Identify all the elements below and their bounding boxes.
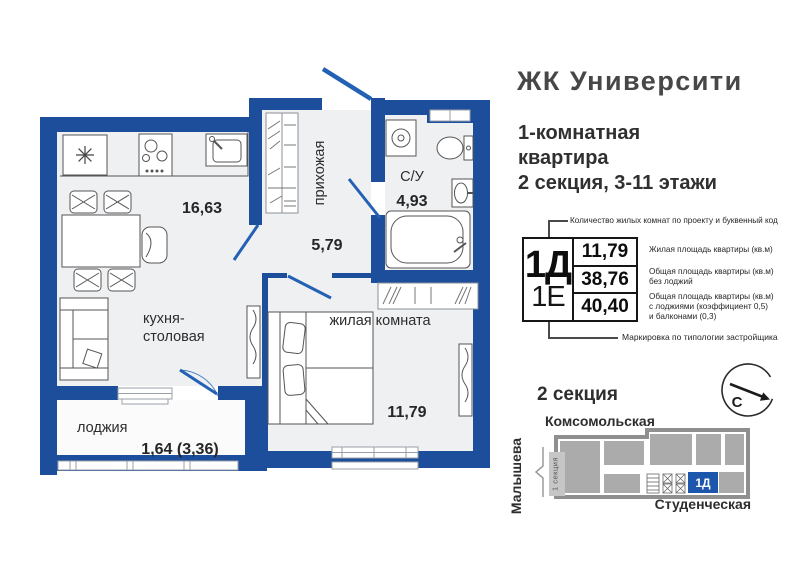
- stove-icon: [139, 134, 172, 176]
- unit-block: [604, 474, 640, 493]
- kitchen-name-1: кухня-: [143, 311, 185, 327]
- wall-hall-living-b: [332, 273, 371, 278]
- section-heading: 2 секция: [537, 384, 618, 405]
- note-no-loggia: Общая площадь квартиры (кв.м) без лоджий: [649, 267, 774, 287]
- note-living: Жилая площадь квартиры (кв.м): [649, 245, 773, 255]
- window-living-sill: [332, 462, 418, 469]
- window-loggia-row: [58, 461, 238, 470]
- wall-left: [40, 117, 57, 475]
- subtitle-line: 1-комнатная: [518, 121, 717, 146]
- fridge-icon: [63, 135, 107, 175]
- unit-block: [560, 441, 600, 493]
- highlighted-unit-label: 1Д: [695, 476, 711, 490]
- wall-bath-left-lower: [371, 215, 385, 270]
- street-komsomolskaya: Комсомольская: [545, 413, 655, 429]
- window-balcony-sill: [122, 399, 168, 404]
- spec-table: 1Д 1Е 11,79 38,76 40,40: [522, 237, 638, 322]
- chair-icon: [74, 269, 101, 291]
- kitchen-area: 16,63: [182, 200, 222, 217]
- area-no-loggia-value: 38,76: [574, 265, 636, 293]
- unit-block: [719, 472, 744, 493]
- hallway-area: 5,79: [311, 237, 342, 254]
- note-line: и балконами (0,3): [649, 312, 774, 322]
- hallway-name: прихожая: [312, 141, 328, 206]
- note-line: с лоджиями (коэффициент 0,5): [649, 302, 774, 312]
- road-line: [536, 447, 543, 497]
- floor-plan: 16,63 кухня- столовая прихожая 5,79 С/У …: [30, 55, 500, 515]
- chair-icon: [70, 191, 97, 213]
- unit-block: [650, 434, 692, 465]
- entrance-door: [323, 69, 371, 99]
- street-malysheva: Малышева: [508, 438, 524, 514]
- unit-block: [696, 434, 721, 465]
- wall-kitchen-loggia-b: [218, 386, 245, 400]
- armchair-icon: [142, 227, 167, 263]
- wall-hallway-left: [249, 98, 262, 225]
- hall-closet-icon: [266, 113, 298, 213]
- bathroom-name: С/У: [400, 169, 425, 185]
- washing-machine-icon: [386, 120, 416, 156]
- note-total: Общая площадь квартиры (кв.м) с лоджиями…: [649, 292, 774, 322]
- wall-hallway-top: [249, 98, 322, 110]
- radiator-icon: [459, 344, 472, 416]
- wall-bath-bottom: [371, 270, 490, 283]
- area-living-value: 11,79: [574, 239, 636, 265]
- area-total-value: 40,40: [574, 292, 636, 320]
- chair-icon: [104, 191, 131, 213]
- connector-line: [548, 322, 550, 338]
- wall-kitchen-top: [40, 117, 262, 132]
- connector-line: [548, 220, 568, 222]
- wall-kitchen-loggia-a: [57, 386, 118, 400]
- loggia-area: 1,64 (3,36): [141, 441, 218, 458]
- code-secondary: 1Е: [531, 282, 564, 312]
- hallway-furniture: [266, 113, 298, 213]
- radiator-icon: [247, 306, 260, 378]
- spec-bottom-note: Маркировка по типологии застройщика: [622, 332, 778, 342]
- living-name: жилая комната: [329, 313, 431, 329]
- sofa-icon: [60, 298, 108, 380]
- page-title: ЖК Университи: [517, 66, 743, 97]
- note-line: Общая площадь квартиры (кв.м): [649, 292, 774, 302]
- bath-sink-icon: [452, 179, 473, 207]
- spec-codes: 1Д 1Е: [524, 239, 574, 320]
- toilet-icon: [437, 136, 473, 160]
- spec-top-note: Количество жилых комнат по проекту и бук…: [570, 216, 778, 226]
- kitchen-sink-icon: [206, 134, 247, 166]
- flyer-page: 16,63 кухня- столовая прихожая 5,79 С/У …: [0, 0, 800, 566]
- unit-block: [604, 441, 644, 465]
- note-line: Общая площадь квартиры (кв.м): [649, 267, 774, 277]
- section-map: 2 секция С Комсомольская: [500, 360, 800, 560]
- subtitle-line: 2 секция, 3-11 этажи: [518, 171, 717, 196]
- connector-line: [548, 220, 550, 237]
- subtitle-line: квартира: [518, 146, 717, 171]
- wardrobe-icon: [378, 283, 478, 309]
- bathroom-area: 4,93: [396, 193, 427, 210]
- connector-line: [548, 337, 618, 339]
- chair-icon: [108, 269, 135, 291]
- compass: С: [722, 364, 772, 416]
- note-line: без лоджий: [649, 277, 774, 287]
- loggia-name: лоджия: [77, 420, 127, 436]
- section-tag-label: 1 секция: [551, 457, 560, 491]
- street-studencheskaya: Студенческая: [655, 496, 751, 512]
- bathtub-icon: [386, 211, 470, 268]
- spec-values: 11,79 38,76 40,40: [574, 239, 636, 320]
- building-diagram: 1Д 1 секция: [549, 430, 748, 497]
- code-primary: 1Д: [525, 248, 571, 282]
- wall-loggia-living-block: [245, 386, 267, 471]
- dining-table: [62, 215, 140, 267]
- apartment-subtitle: 1-комнатная квартира 2 секция, 3-11 этаж…: [518, 121, 717, 196]
- kitchen-name-2: столовая: [143, 329, 205, 345]
- stairs-icon: [647, 474, 659, 493]
- compass-letter: С: [732, 394, 743, 411]
- unit-block: [725, 434, 744, 465]
- living-area: 11,79: [387, 404, 426, 421]
